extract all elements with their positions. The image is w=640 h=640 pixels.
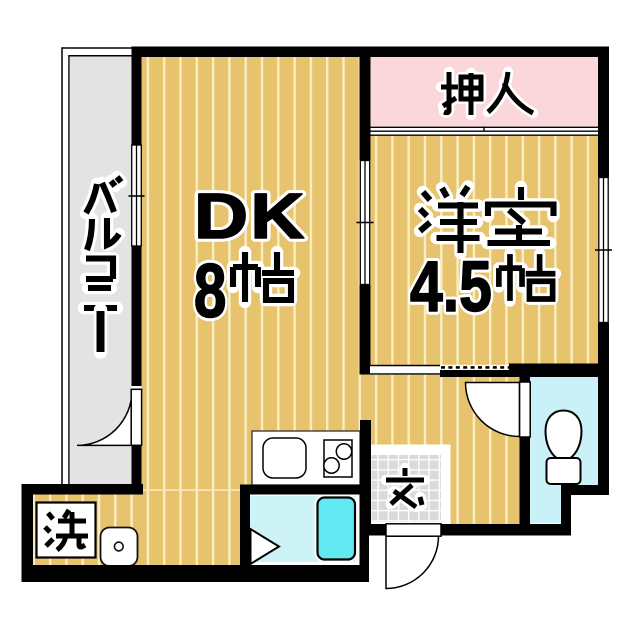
svg-text:DK: DK — [194, 180, 307, 252]
svg-text:4.5: 4.5 — [410, 247, 492, 326]
svg-text:8: 8 — [194, 250, 227, 334]
